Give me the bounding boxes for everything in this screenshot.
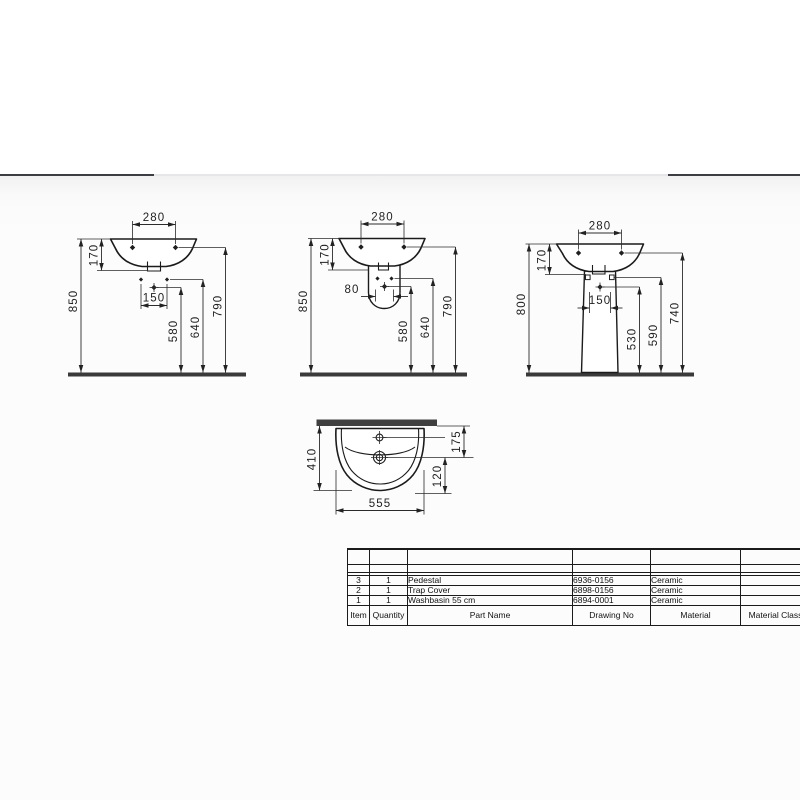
cell-material: Ceramic [651, 586, 741, 596]
header-part-name: Part Name [408, 606, 573, 626]
technical-drawing: 280 170 850 150 580 640 790 [0, 0, 800, 800]
cell-part-name: Washbasin 55 cm [408, 596, 573, 606]
empty-cell [370, 565, 408, 573]
cell-material-class [741, 586, 800, 596]
cell-drawing-no: 6936-0156 [573, 576, 651, 586]
cell-quantity: 1 [370, 576, 408, 586]
basin-outline [111, 239, 197, 267]
dim-label-hole-span: 150 [589, 295, 612, 307]
fixing-hole [165, 277, 169, 281]
header-quantity: Quantity [370, 606, 408, 626]
empty-cell [741, 565, 800, 573]
empty-cell [651, 565, 741, 573]
dim-label-rim-drop: 170 [89, 244, 101, 267]
table-header-row: Item Quantity Part Name Drawing No Mater… [348, 606, 800, 626]
wall-section-bar [317, 420, 438, 427]
empty-cell [651, 549, 741, 565]
cell-part-name: Pedestal [408, 576, 573, 586]
cell-material: Ceramic [651, 596, 741, 606]
basin-outline [339, 239, 425, 267]
dim-label-tap-span: 280 [371, 212, 394, 224]
dim-label-tap-span: 280 [589, 221, 612, 233]
header-drawing-no: Drawing No [573, 606, 651, 626]
empty-cell [573, 565, 651, 573]
floor-line [68, 373, 246, 377]
fixing-hole [139, 277, 143, 281]
dim-label-rim-drop: 170 [537, 249, 549, 272]
empty-row [348, 549, 800, 565]
plan-view: 410 555 175 120 [307, 420, 474, 515]
dim-label-height: 850 [68, 290, 80, 313]
cell-item: 2 [348, 586, 370, 596]
dim-label-h-center: 580 [168, 320, 180, 343]
cell-item: 3 [348, 576, 370, 586]
dim-label-h-holes: 640 [420, 316, 432, 339]
dim-label-h-rim: 740 [670, 302, 682, 325]
dim-label-h-holes: 590 [648, 324, 660, 347]
header-material: Material [651, 606, 741, 626]
cell-drawing-no: 6898-0156 [573, 586, 651, 596]
empty-cell [370, 549, 408, 565]
dim-label-width: 555 [369, 498, 392, 510]
front-view-wall-hung: 280 170 850 150 580 640 790 [68, 212, 246, 377]
cell-part-name: Trap Cover [408, 586, 573, 596]
dim-label-height: 850 [298, 290, 310, 313]
dim-label-h-center: 530 [627, 328, 639, 351]
dim-label-height: 800 [516, 293, 528, 316]
dim-label-h-holes: 640 [190, 316, 202, 339]
empty-cell [408, 549, 573, 565]
dim-label-depth: 410 [307, 448, 319, 471]
empty-cell [348, 565, 370, 573]
dim-label-hole-span: 150 [143, 293, 166, 305]
header-item: Item [348, 606, 370, 626]
header-material-class: Material Class [741, 606, 800, 626]
dim-label-h-rim: 790 [443, 295, 455, 318]
basin-outline [557, 244, 644, 272]
table-row: 2 1 Trap Cover 6898-0156 Ceramic [348, 586, 800, 596]
table-row: 1 1 Washbasin 55 cm 6894-0001 Ceramic [348, 596, 800, 606]
front-view-semi-pedestal: 280 170 850 80 580 640 790 [298, 212, 467, 377]
drawing-sheet: 280 170 850 150 580 640 790 [0, 0, 800, 800]
parts-table: 3 1 Pedestal 6936-0156 Ceramic 2 1 Trap … [347, 548, 800, 626]
dim-label-h-rim: 790 [213, 295, 225, 318]
empty-row [348, 565, 800, 573]
cell-drawing-no: 6894-0001 [573, 596, 651, 606]
dim-label-h-center: 580 [398, 320, 410, 343]
dim-label-hole-span: 80 [345, 284, 360, 296]
dim-label-drain-offset: 120 [432, 465, 444, 488]
dim-label-rim-drop: 170 [320, 243, 332, 266]
empty-cell [573, 549, 651, 565]
empty-cell [348, 549, 370, 565]
cell-material: Ceramic [651, 576, 741, 586]
cell-quantity: 1 [370, 586, 408, 596]
cell-quantity: 1 [370, 596, 408, 606]
cell-item: 1 [348, 596, 370, 606]
front-view-pedestal: 280 170 800 150 530 590 740 [516, 221, 694, 377]
empty-cell [408, 565, 573, 573]
empty-cell [741, 549, 800, 565]
floor-line [300, 373, 467, 377]
table-row: 3 1 Pedestal 6936-0156 Ceramic [348, 576, 800, 586]
cell-material-class [741, 596, 800, 606]
dim-label-tap-offset: 175 [451, 430, 463, 453]
dim-label-tap-span: 280 [143, 212, 166, 224]
cell-material-class [741, 576, 800, 586]
